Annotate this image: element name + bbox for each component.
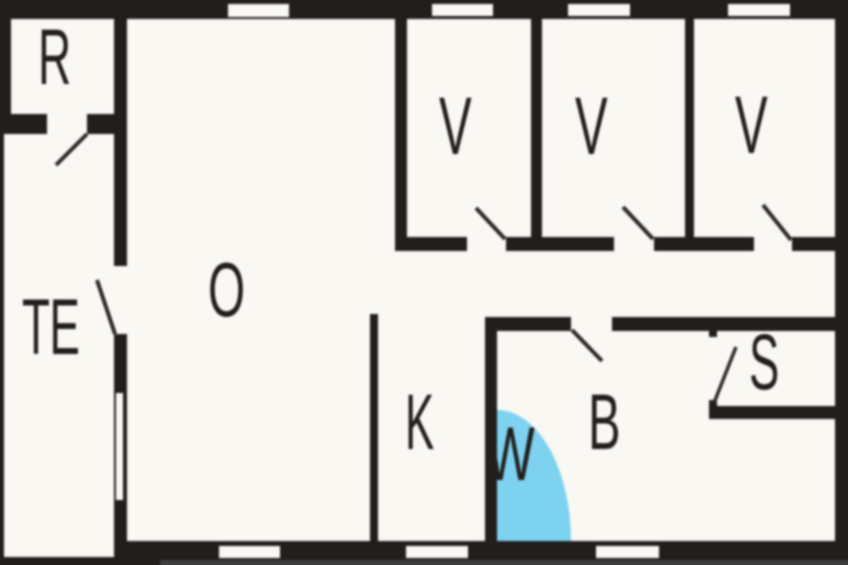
svg-text:B: B <box>588 378 621 466</box>
svg-text:O: O <box>208 247 245 334</box>
svg-text:S: S <box>749 318 779 406</box>
svg-text:V: V <box>575 81 608 172</box>
svg-text:V: V <box>735 80 768 171</box>
svg-text:V: V <box>439 81 472 172</box>
svg-text:K: K <box>405 377 434 466</box>
svg-text:W: W <box>486 411 535 496</box>
svg-text:TE: TE <box>22 283 79 371</box>
svg-text:R: R <box>38 12 71 101</box>
